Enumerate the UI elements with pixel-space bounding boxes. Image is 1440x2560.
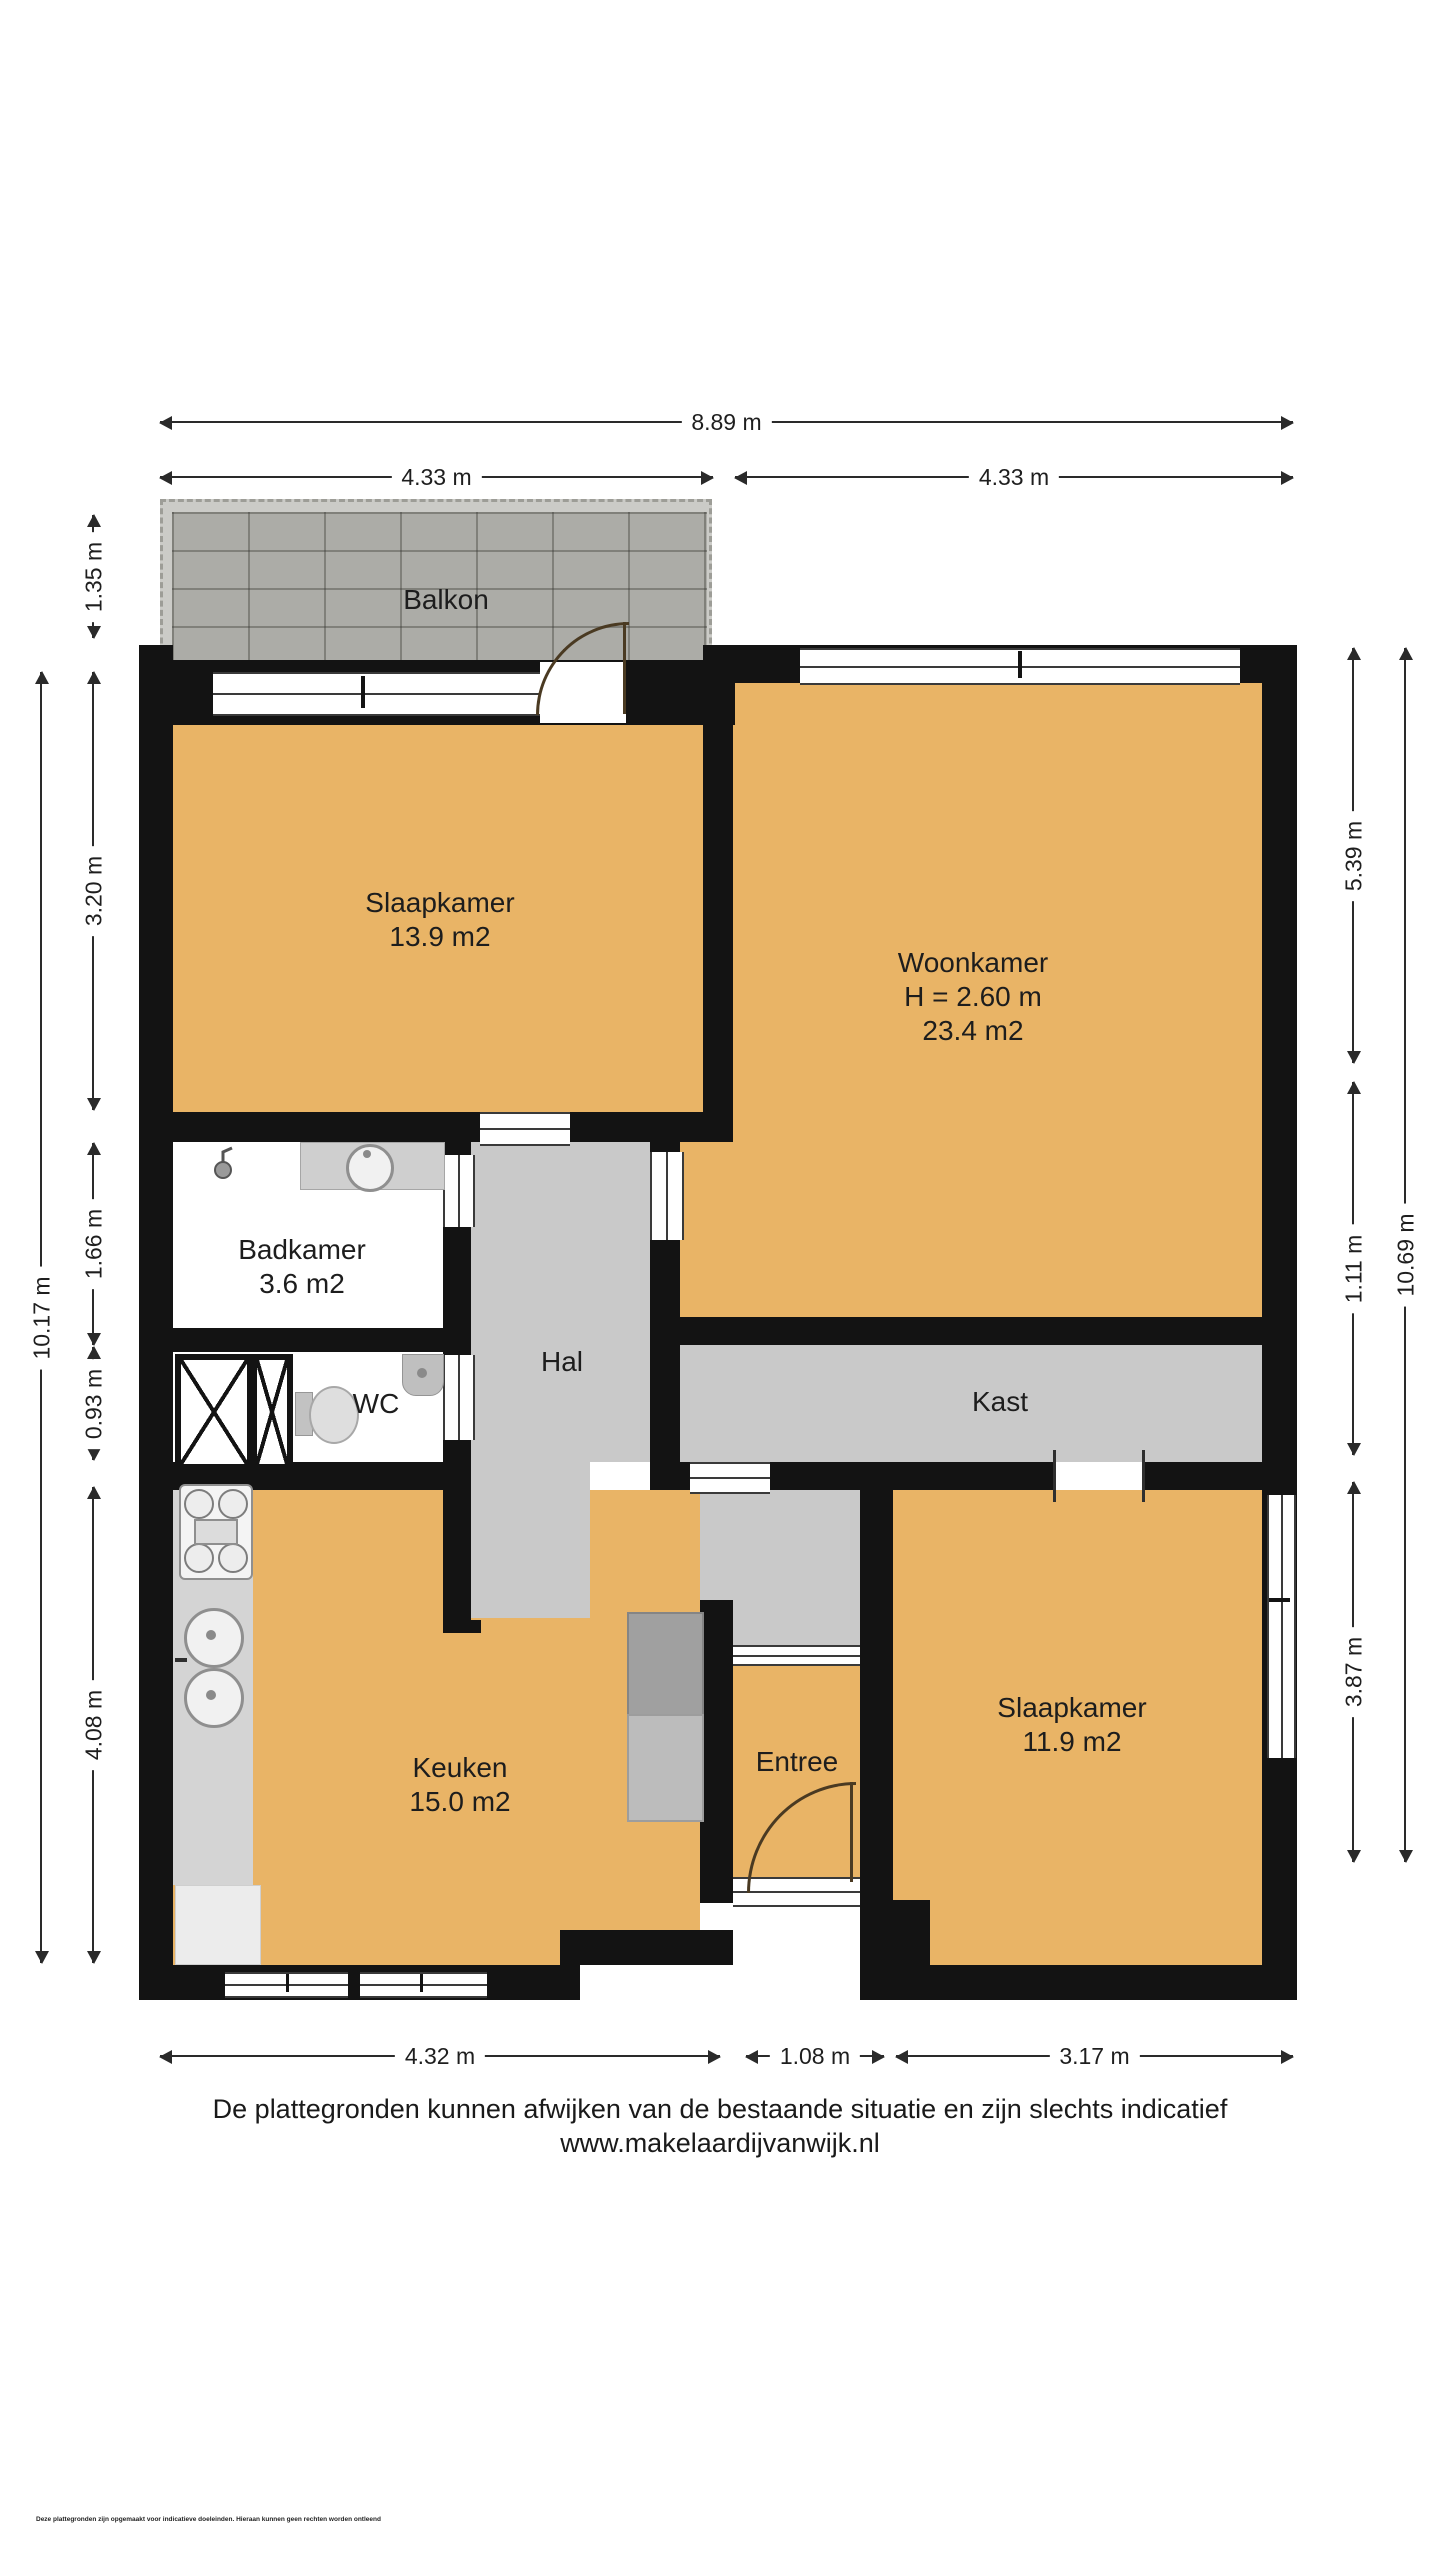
window-mullion [361,676,365,708]
wall [893,1965,1297,2000]
room-label-balkon: Balkon [403,583,489,617]
sink-drain-icon [206,1690,216,1700]
door-slaapkamer1-threshold [480,1112,570,1146]
dim-left-upper: 3.20 m [92,672,94,1110]
dim-left-mid2: 0.93 m [92,1347,94,1460]
wall [860,1490,893,1965]
floor-plan-page: Balkon Slaapkamer 13.9 m2 Woonkamer H = … [0,0,1440,2560]
balcony-door-leaf [623,622,626,714]
dim-right-upper: 5.39 m [1352,648,1354,1063]
window [360,1972,487,1998]
room-woonkamer-floor-lower [680,1142,1262,1317]
wall [703,645,733,1142]
front-door-leaf [850,1782,853,1882]
sink-drain-icon [206,1630,216,1640]
wall [700,1600,733,1903]
dim-right-mid: 1.11 m [1352,1082,1354,1455]
dim-bottom-right: 3.17 m [896,2055,1293,2057]
door-badkamer-threshold [443,1155,475,1227]
sink-drain-icon [363,1150,371,1158]
door-slaapkamer2-jamb [1142,1450,1145,1502]
room-label-hal: Hal [541,1345,583,1379]
kitchen-faucet-icon [175,1658,187,1662]
room-label-wc: WC [353,1387,400,1421]
room-hal-floor-corridor [700,1490,860,1600]
sink-drain-icon [417,1368,427,1378]
door-wc-threshold [443,1355,475,1440]
room-label-entree: Entree [756,1745,839,1779]
window [213,672,540,716]
room-label-keuken: Keuken 15.0 m2 [409,1751,510,1819]
wall [139,645,173,2000]
dim-left-lower: 4.08 m [92,1487,94,1963]
wall [680,1317,1297,1345]
dim-right-total: 10.69 m [1404,648,1406,1862]
fine-print-text: Deze plattegronden zijn opgemaakt voor i… [36,2516,381,2523]
wall [139,1112,733,1142]
disclaimer-text: De plattegronden kunnen afwijken van de … [0,2094,1440,2125]
room-hal-floor-main [471,1142,650,1462]
dim-left-mid1: 1.66 m [92,1143,94,1345]
appliance-icon [627,1612,704,1716]
stove-icon [179,1484,253,1580]
window-mullion [420,1974,423,1992]
room-hal-floor-passage [733,1600,860,1647]
room-label-slaapkamer2: Slaapkamer 11.9 m2 [997,1691,1146,1759]
appliance-icon [627,1714,704,1822]
window [1267,1495,1296,1758]
wall [139,1328,471,1352]
room-label-slaapkamer1: Slaapkamer 13.9 m2 [365,886,514,954]
dim-top-total: 8.89 m [160,421,1293,423]
wall [443,1620,481,1633]
room-label-badkamer: Badkamer 3.6 m2 [238,1233,366,1301]
door-woonkamer-threshold [650,1152,684,1240]
wall [560,1930,733,1965]
room-hal-floor-notch [471,1462,590,1618]
dim-top-left: 4.33 m [160,476,713,478]
dim-left-total: 10.17 m [40,672,42,1963]
website-text: www.makelaardijvanwijk.nl [0,2128,1440,2159]
kitchen-cabinet [175,1885,261,1965]
dim-bottom-mid: 1.08 m [746,2055,884,2057]
window-mullion [1269,1598,1290,1602]
dim-left-balkon: 1.35 m [92,515,94,638]
dim-bottom-left: 4.32 m [160,2055,720,2057]
wall [443,1490,471,1633]
room-label-kast: Kast [972,1385,1028,1419]
door-kast-threshold [690,1462,770,1494]
shaft-box-icon [175,1354,253,1470]
window-mullion [1018,651,1022,678]
room-label-woonkamer: Woonkamer H = 2.60 m 23.4 m2 [898,946,1048,1048]
room-woonkamer-floor-upper [733,683,1262,1142]
shower-icon [206,1144,240,1184]
door-slaapkamer2-jamb [1053,1450,1056,1502]
door-slaapkamer2-opening [1055,1462,1145,1490]
door-entree-threshold [733,1645,860,1666]
dim-top-right: 4.33 m [735,476,1293,478]
window-mullion [286,1974,289,1992]
toilet-bowl-icon [309,1386,359,1444]
shaft-box-icon [251,1354,293,1470]
dim-right-lower: 3.87 m [1352,1482,1354,1862]
